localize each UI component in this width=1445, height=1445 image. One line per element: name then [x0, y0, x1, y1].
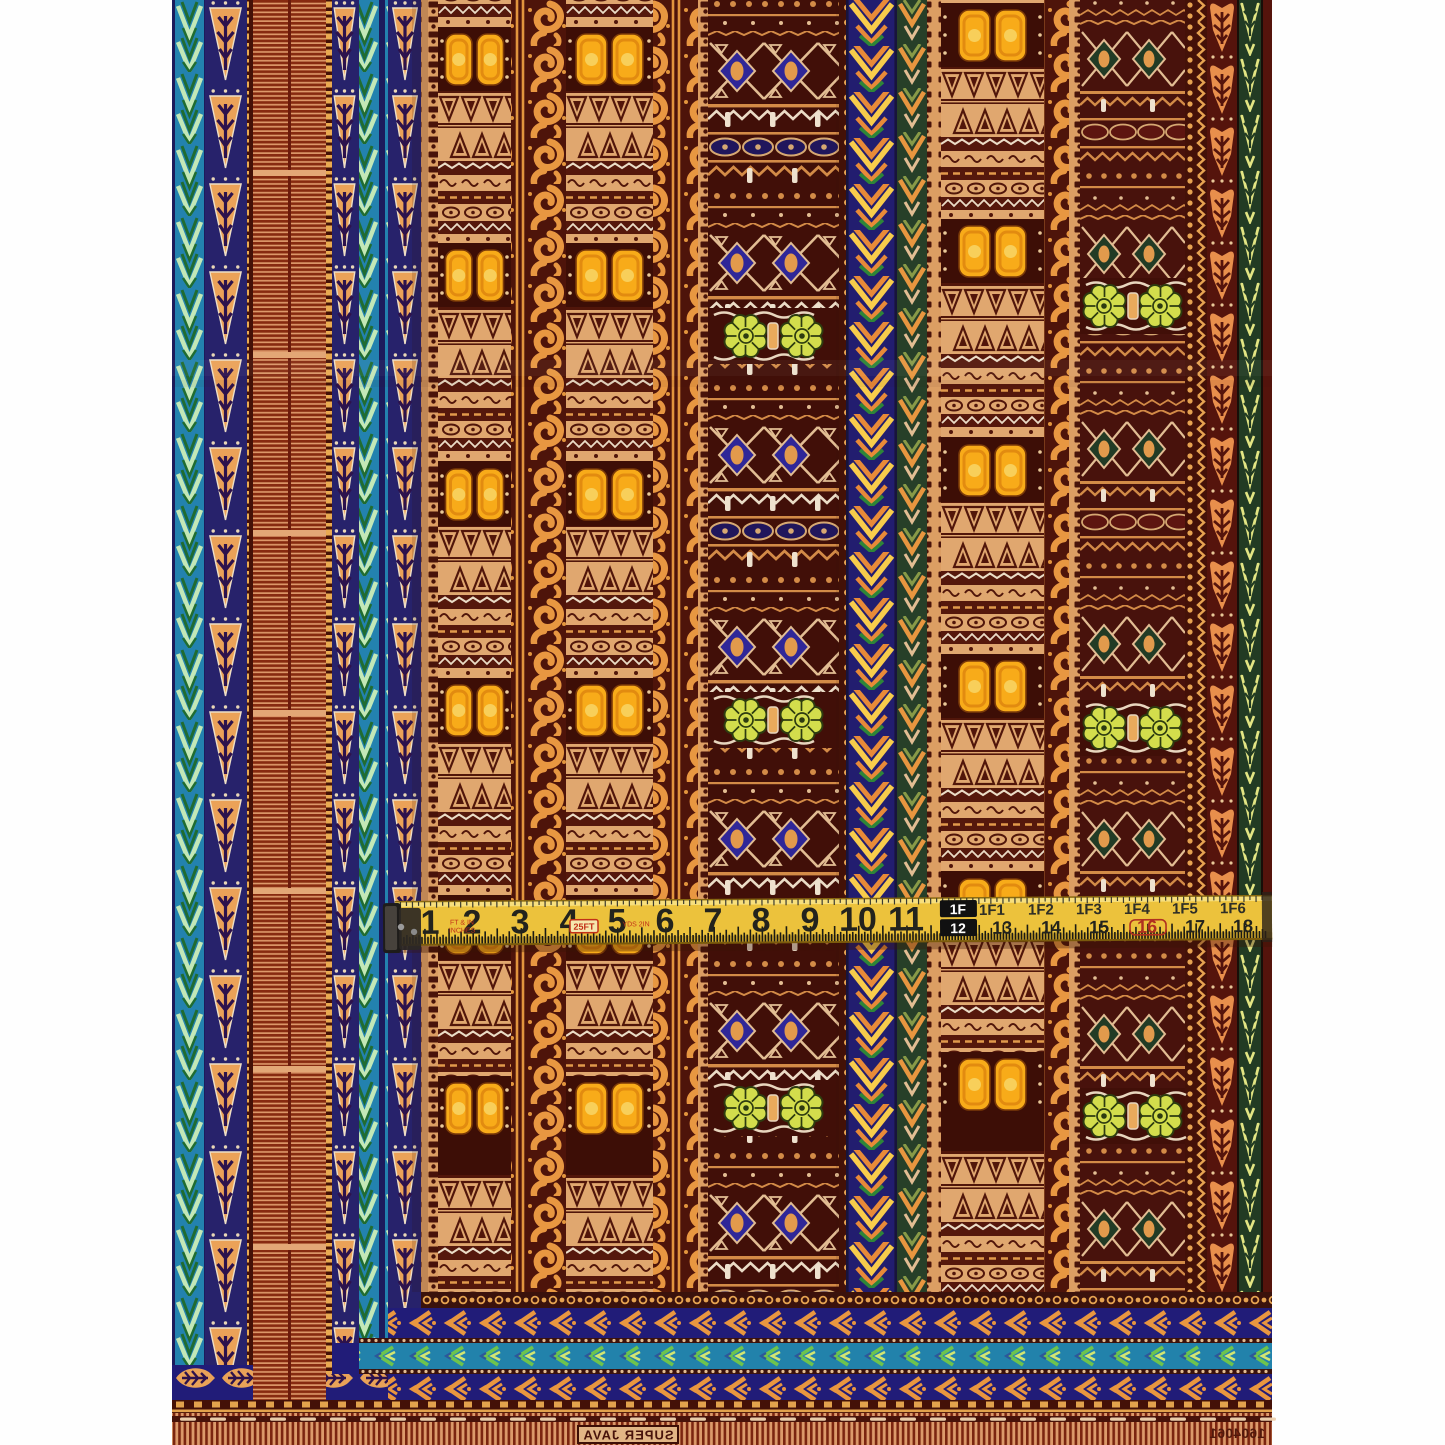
- svg-text:1F4: 1F4: [1124, 901, 1151, 918]
- svg-text:1: 1: [420, 904, 439, 942]
- svg-text:1F: 1F: [950, 901, 967, 917]
- svg-text:1F2: 1F2: [1028, 901, 1054, 918]
- svg-text:25FT: 25FT: [573, 922, 595, 932]
- svg-text:14: 14: [1041, 917, 1061, 937]
- svg-text:6: 6: [655, 902, 674, 940]
- svg-text:13: 13: [992, 918, 1012, 938]
- svg-text:YDS 2IN: YDS 2IN: [622, 921, 649, 928]
- svg-text:1F3: 1F3: [1076, 901, 1102, 918]
- svg-text:1F5: 1F5: [1172, 900, 1198, 917]
- svg-text:1F6: 1F6: [1220, 900, 1246, 917]
- svg-text:18: 18: [1233, 916, 1253, 936]
- svg-text:11: 11: [888, 900, 924, 938]
- svg-text:8: 8: [751, 901, 770, 939]
- svg-text:INCHES: INCHES: [449, 927, 476, 934]
- svg-text:15: 15: [1089, 917, 1109, 937]
- svg-text:10: 10: [839, 901, 877, 939]
- svg-text:3: 3: [510, 903, 529, 941]
- svg-text:9: 9: [800, 901, 819, 939]
- svg-text:1F1: 1F1: [979, 902, 1005, 919]
- svg-text:17: 17: [1185, 916, 1205, 936]
- svg-text:7: 7: [703, 902, 722, 940]
- svg-text:12: 12: [950, 920, 966, 936]
- svg-text:FT & IN: FT & IN: [450, 919, 474, 926]
